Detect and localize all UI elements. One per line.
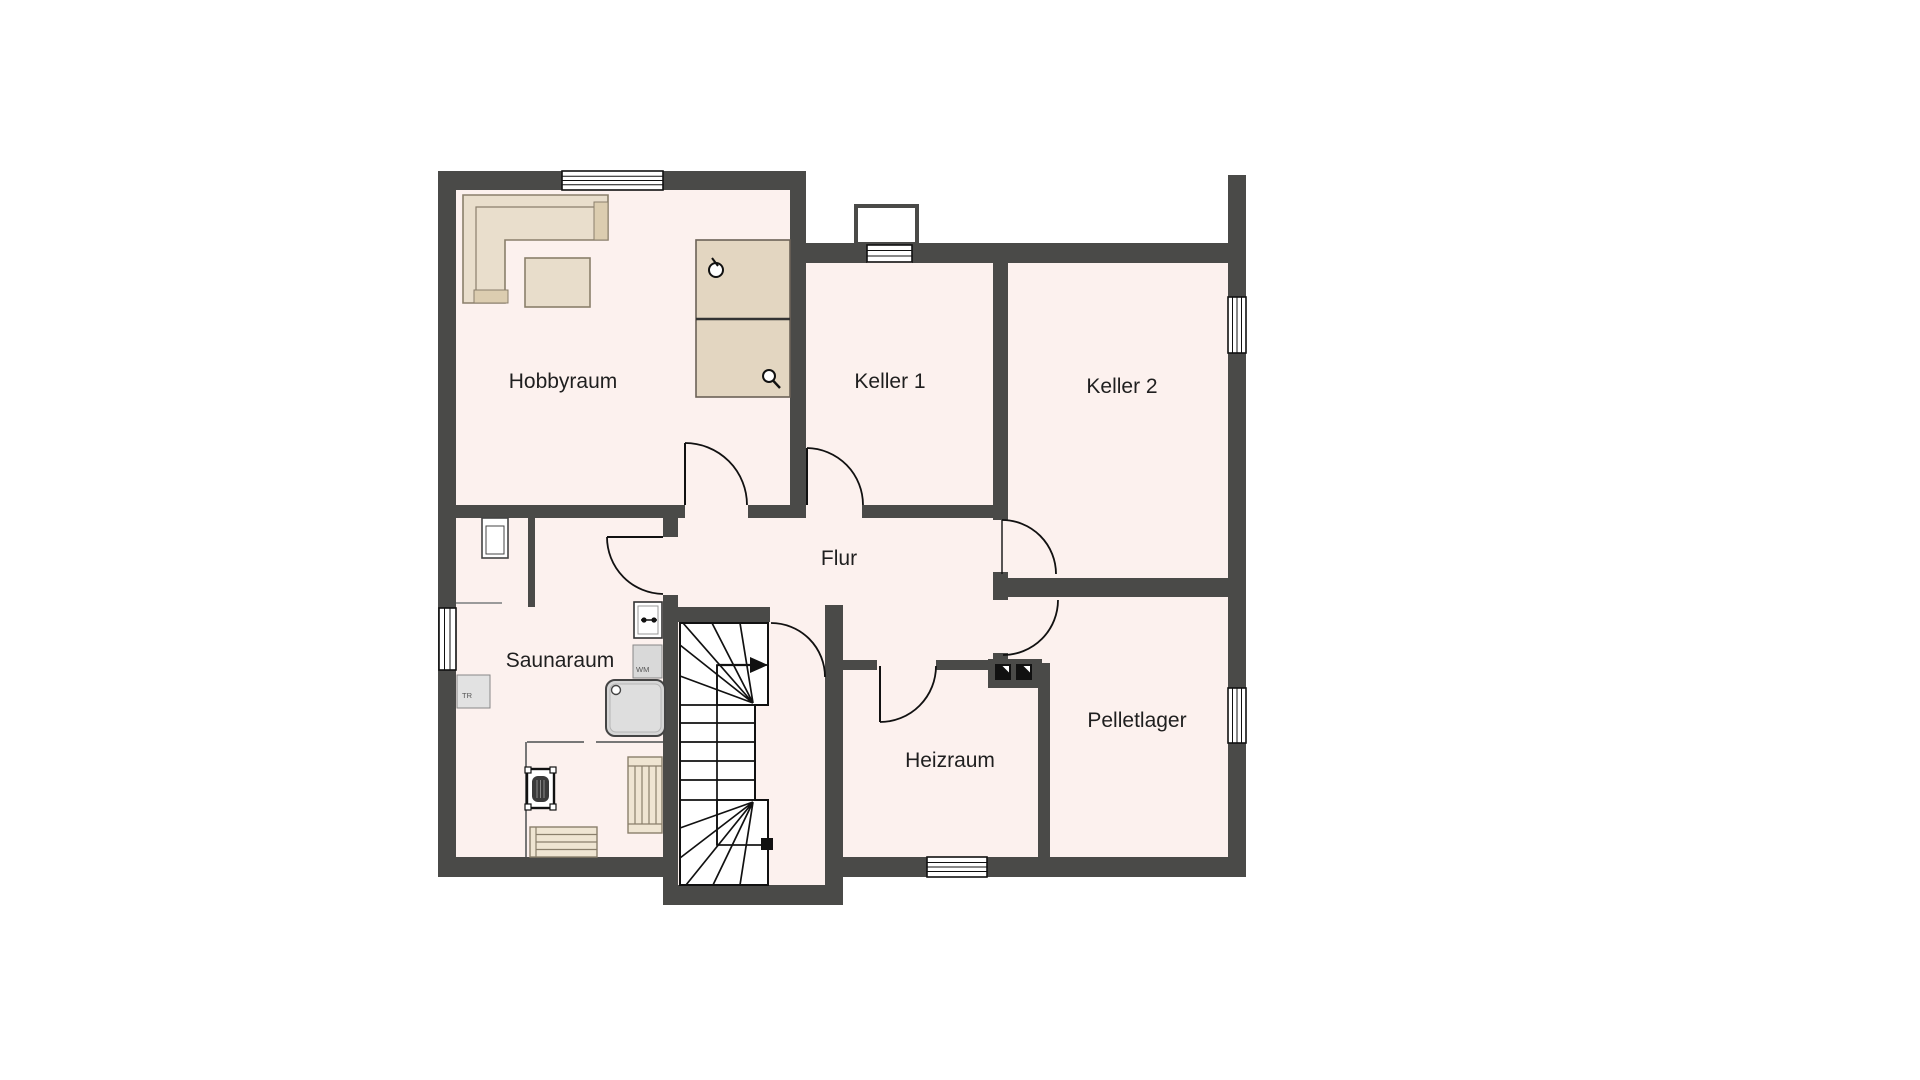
sauna-bench-south (530, 827, 597, 857)
wall-outer-right-c (1228, 743, 1246, 877)
wall-outer-bottom-c (987, 857, 1246, 877)
wall-duct-box (482, 518, 508, 558)
wall-flur-north-b (748, 505, 806, 518)
wall-heizraum-north-b (936, 660, 993, 670)
room-label-keller2: Keller 2 (1086, 375, 1157, 398)
wall-keller1-keller2-divider (993, 263, 1008, 520)
shower-tray (606, 680, 665, 736)
washbasin (634, 602, 662, 638)
wall-outer-top-west-b (663, 171, 806, 190)
wall-outer-right-b (1228, 353, 1246, 688)
light-well (856, 206, 917, 244)
wall-sauna-east-b (663, 595, 678, 905)
wall-heizraum-pellet-divider (1038, 663, 1050, 857)
wall-stairwell-east (825, 605, 843, 905)
wall-heizraum-north-a (843, 660, 877, 670)
window-heizraum-bottom (927, 857, 987, 877)
wall-keller2-pellet-divider (1008, 578, 1246, 597)
wall-flur-north-c (862, 505, 993, 518)
dryer-label: TR (462, 691, 473, 700)
wall-sauna-partition (528, 518, 535, 607)
washing-machine-label: WM (636, 665, 649, 674)
window-keller1-top (867, 245, 912, 262)
wall-stairwell-top (663, 607, 770, 622)
wall-outer-bottom-a (438, 857, 678, 877)
floorplan-drawing: WM TR (0, 0, 1920, 1080)
coffee-table (525, 258, 590, 307)
stairs-entry-marker (761, 838, 773, 850)
wall-outer-top-east-b (912, 243, 1246, 263)
room-label-heizraum: Heizraum (905, 749, 995, 772)
window-hobbyraum-top (562, 171, 663, 190)
sauna-heater (525, 767, 556, 810)
window-pelletlager-right (1228, 688, 1246, 743)
floorplan-page: WM TR (0, 0, 1920, 1080)
wall-outer-right-a (1228, 175, 1246, 297)
wall-outer-top-east-a (806, 243, 867, 263)
wall-outer-bottom-b (842, 857, 927, 877)
wall-outer-left (438, 171, 456, 877)
wall-outer-top-west-a (438, 171, 562, 190)
wall-hobby-keller1-divider (790, 171, 806, 518)
room-label-keller1: Keller 1 (854, 370, 925, 393)
room-label-pelletlager: Pelletlager (1087, 709, 1186, 732)
pellet-pipe-icon (995, 664, 1011, 680)
cabinet (696, 240, 790, 397)
shower-drain (612, 686, 621, 695)
sauna-bench-east (628, 757, 662, 833)
window-saunaraum-left (439, 608, 456, 670)
room-label-hobbyraum: Hobbyraum (509, 370, 618, 393)
window-keller2-right (1228, 297, 1246, 353)
dryer: TR (457, 675, 490, 708)
room-label-saunaraum: Saunaraum (506, 649, 615, 672)
wall-door-block-upper (993, 572, 1008, 600)
wall-flur-north-a (456, 505, 685, 518)
room-label-flur: Flur (821, 547, 857, 570)
wall-stairwell-bottom (663, 885, 842, 905)
pellet-pipe-icon (1016, 664, 1032, 680)
washing-machine: WM (633, 645, 662, 678)
